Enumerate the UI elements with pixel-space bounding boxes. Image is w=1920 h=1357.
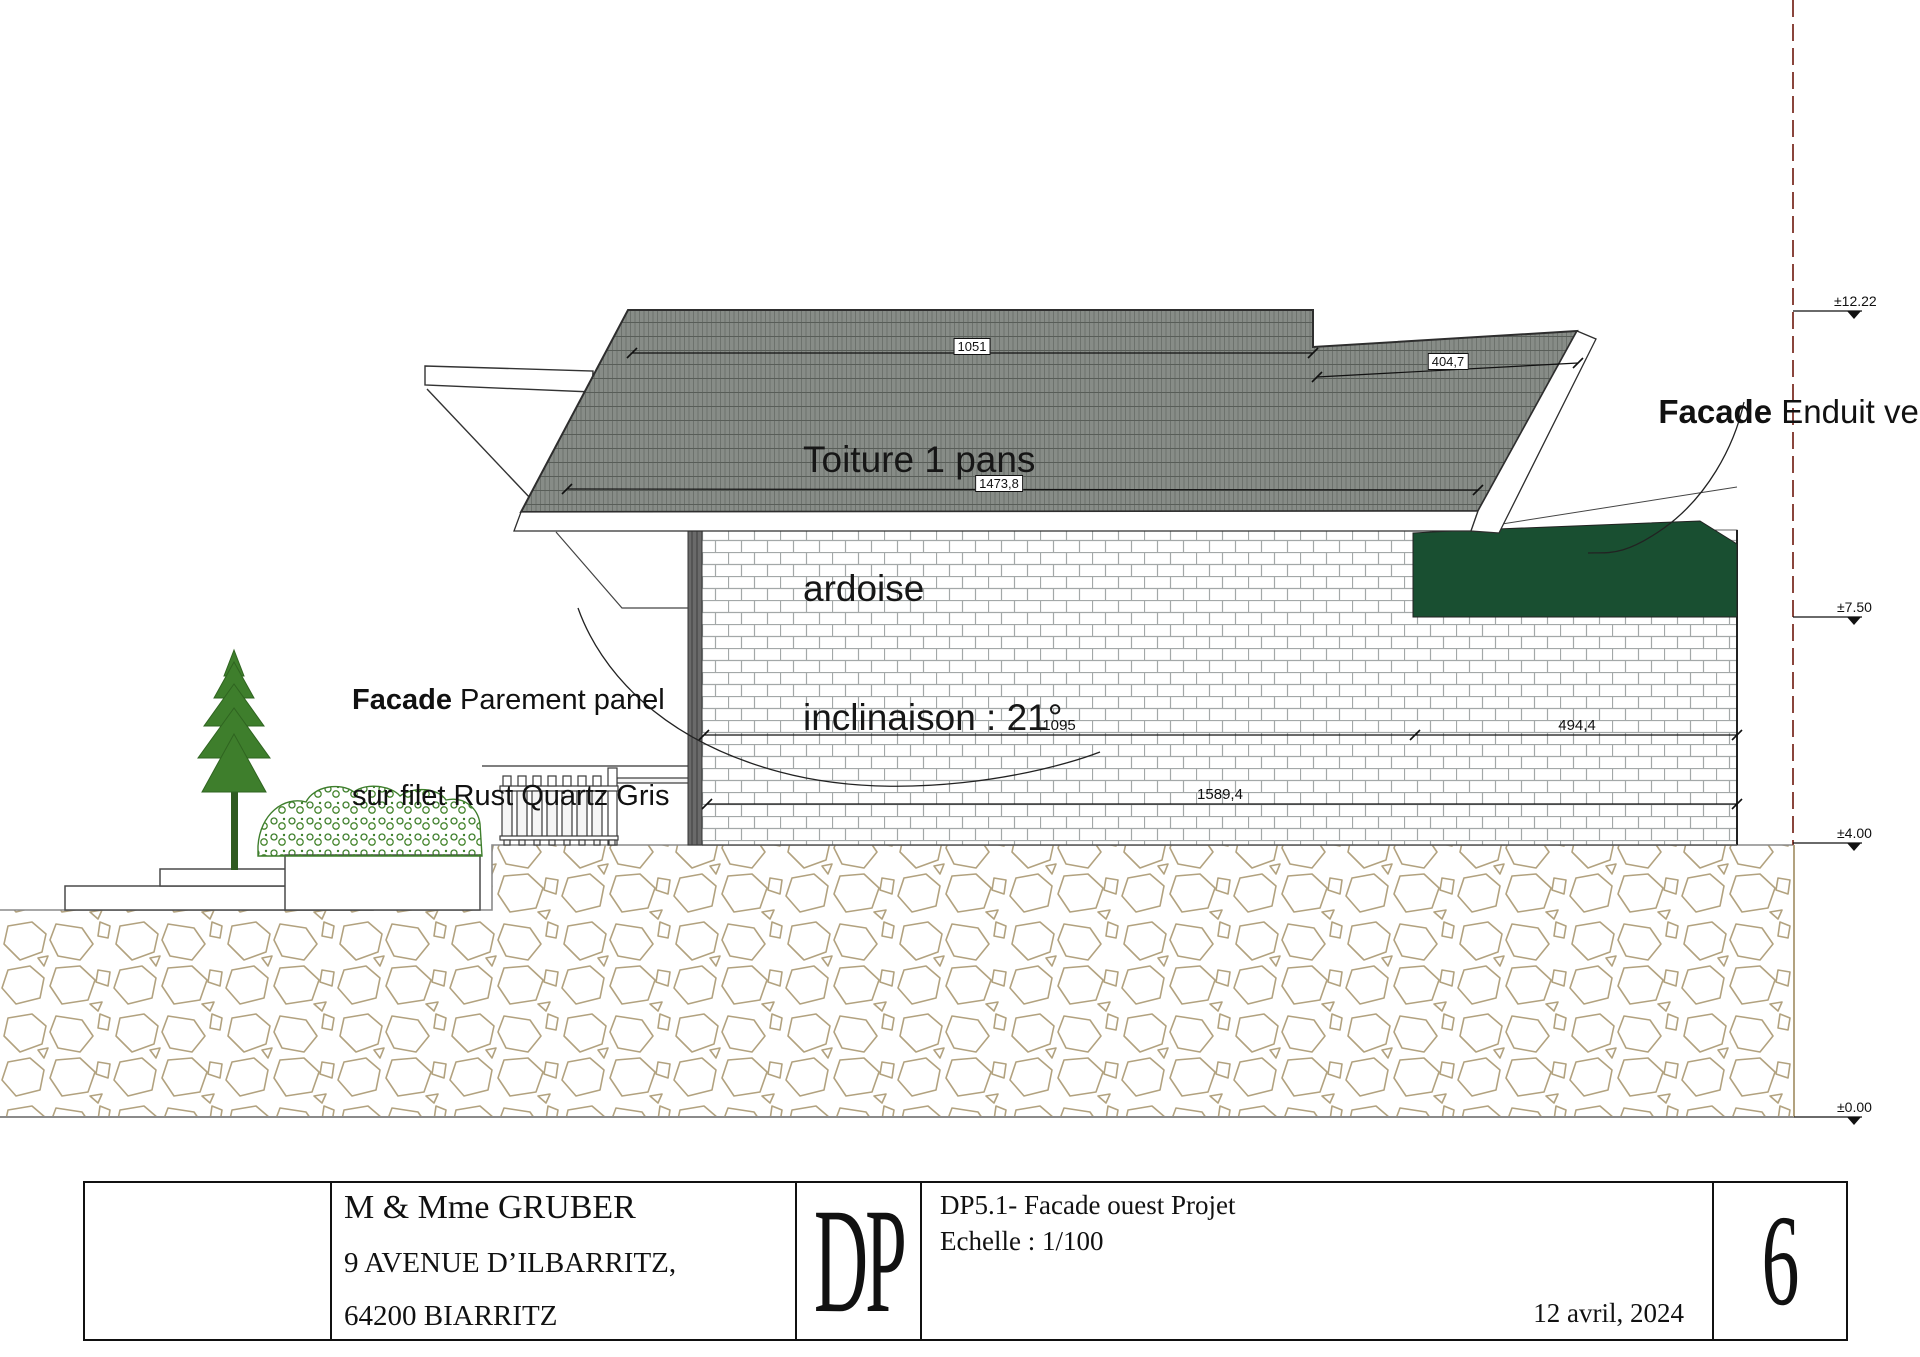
- level-markers: [1793, 311, 1862, 1125]
- title-block: M & Mme GRUBER 9 AVENUE D’ILBARRITZ, 642…: [83, 1181, 1848, 1341]
- dim-roof-right: 404,7: [1428, 353, 1469, 370]
- document-date: 12 avril, 2024: [1533, 1298, 1684, 1329]
- soffit-line: [556, 532, 688, 608]
- roof-note-line2: ardoise: [803, 567, 1063, 610]
- level-marker-triangle: [1847, 843, 1861, 851]
- level-7-50: ±7.50: [1837, 600, 1872, 614]
- facade-left-line2: sur filet Rust Quartz Gris: [352, 780, 669, 812]
- level-marker-triangle: [1847, 311, 1861, 319]
- facade-right-rest: Enduit vert: [1772, 393, 1920, 430]
- downspout: [688, 530, 702, 845]
- dim-wall-total: 1589,4: [1197, 787, 1243, 802]
- dp-logo-text: DP: [814, 1186, 904, 1336]
- facade-right-label: Facade Enduit vert: [1640, 355, 1920, 431]
- client-name: M & Mme GRUBER: [344, 1189, 795, 1227]
- level-marker-triangle: [1847, 617, 1861, 625]
- title-block-main-cell: DP5.1- Facade ouest Projet Echelle : 1/1…: [922, 1183, 1714, 1339]
- level-0-00: ±0.00: [1837, 1100, 1872, 1114]
- facade-left-rest: Parement panel: [452, 684, 665, 716]
- facade-right-bold: Facade: [1658, 393, 1772, 430]
- roof-note: Toiture 1 pans ardoise inclinaison : 21°: [803, 352, 1063, 782]
- dp-logo: DP: [797, 1183, 922, 1339]
- page-number-cell: 6: [1714, 1183, 1846, 1339]
- client-address-1: 9 AVENUE D’ILBARRITZ,: [344, 1247, 795, 1280]
- level-12-22: ±12.22: [1834, 294, 1877, 308]
- dim-wall-right: 494,4: [1558, 718, 1596, 733]
- dim-roof-bottom: 1473,8: [975, 475, 1023, 492]
- dim-roof-top: 1051: [954, 338, 991, 355]
- document-scale: Echelle : 1/100: [940, 1223, 1712, 1259]
- title-block-empty-cell: [85, 1183, 332, 1339]
- page-number: 6: [1761, 1196, 1799, 1326]
- elevation-drawing-page: Toiture 1 pans ardoise inclinaison : 21°…: [0, 0, 1920, 1357]
- title-block-client-cell: M & Mme GRUBER 9 AVENUE D’ILBARRITZ, 642…: [332, 1183, 797, 1339]
- facade-left-label: Facade Parement panel sur filet Rust Qua…: [352, 620, 669, 844]
- client-address-2: 64200 BIARRITZ: [344, 1300, 795, 1333]
- dim-wall-left: 1095: [1042, 718, 1075, 733]
- level-marker-triangle: [1847, 1117, 1861, 1125]
- roof-note-line1: Toiture 1 pans: [803, 438, 1063, 481]
- facade-left-bold: Facade: [352, 684, 452, 716]
- planter-box: [285, 855, 480, 910]
- document-title: DP5.1- Facade ouest Projet: [940, 1187, 1712, 1223]
- roof-note-line3: inclinaison : 21°: [803, 696, 1063, 739]
- level-4-00: ±4.00: [1837, 826, 1872, 840]
